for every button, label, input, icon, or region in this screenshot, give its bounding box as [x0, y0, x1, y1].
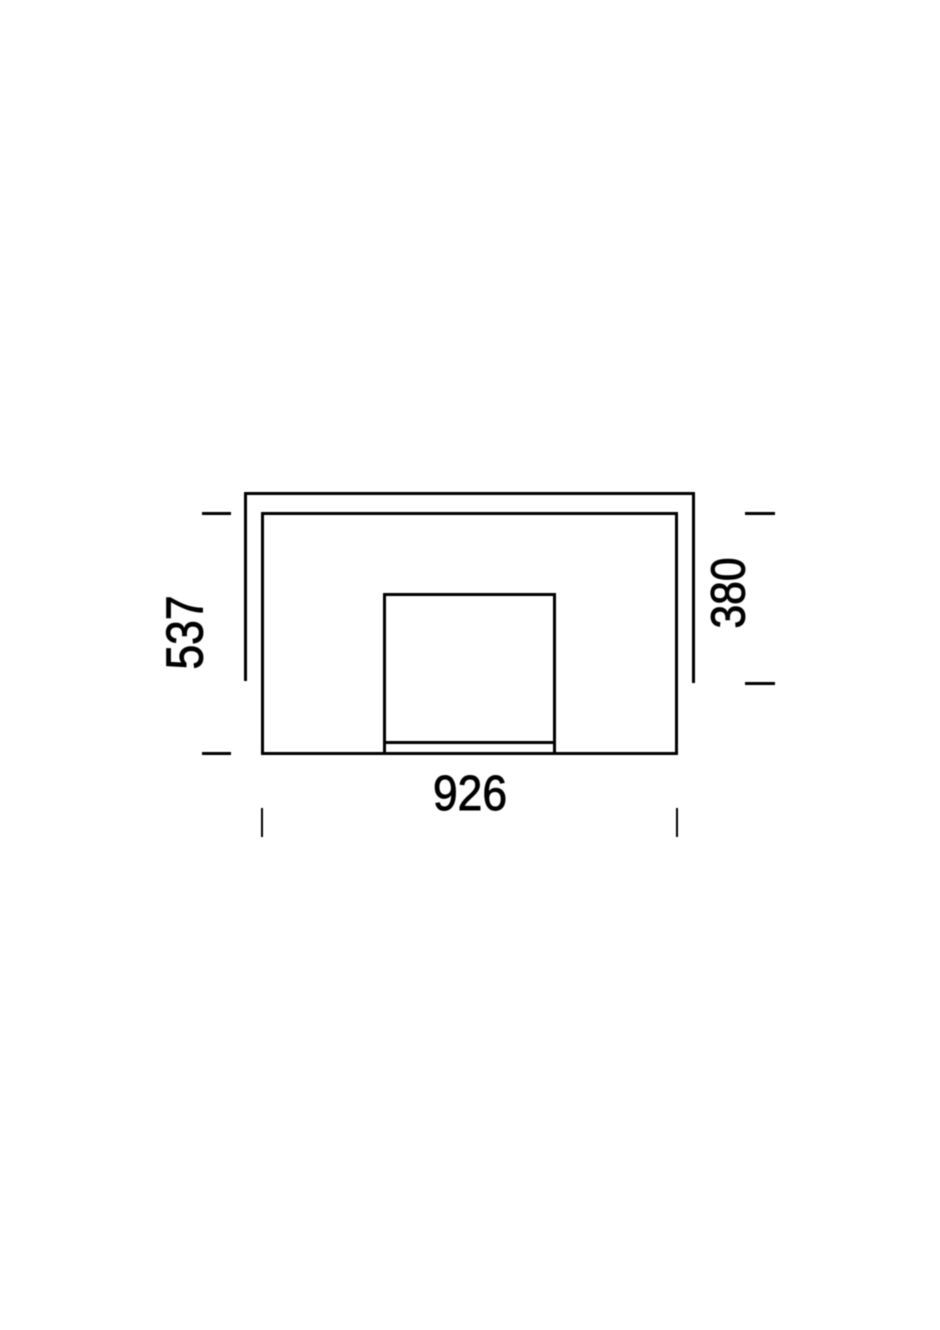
- svg-text:926: 926: [433, 767, 507, 821]
- svg-text:380: 380: [703, 558, 756, 629]
- svg-text:537: 537: [157, 596, 215, 670]
